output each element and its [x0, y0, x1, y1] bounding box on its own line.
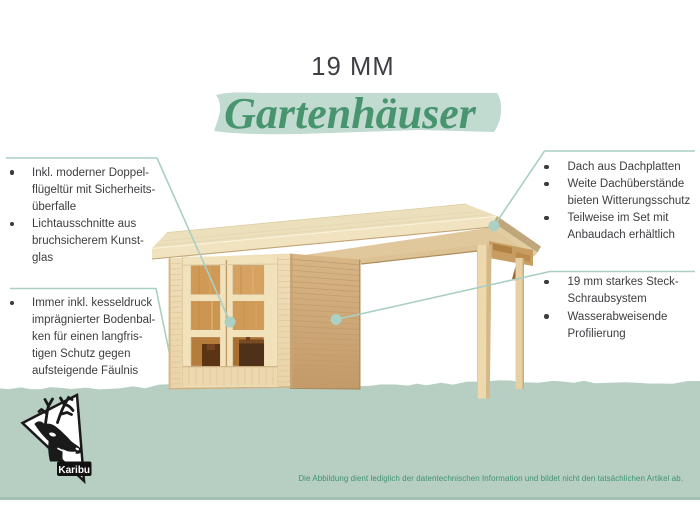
svg-text:Karibu: Karibu	[58, 465, 90, 476]
